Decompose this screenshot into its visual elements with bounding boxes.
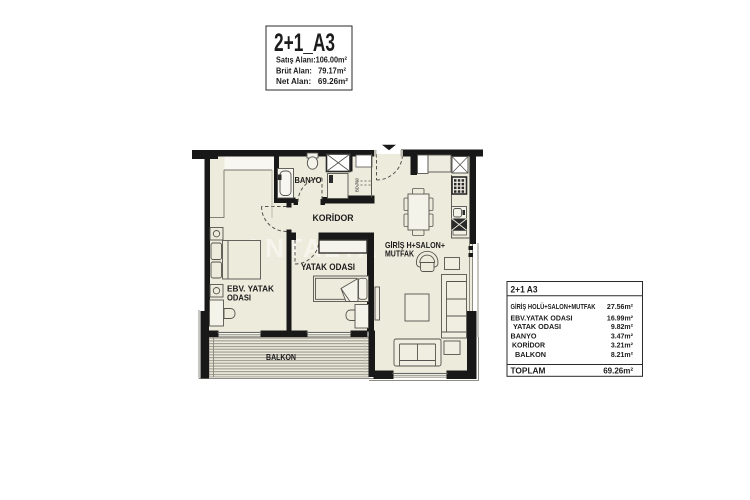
svg-text:YATAK ODASI: YATAK ODASI xyxy=(301,262,355,272)
svg-text:3.47m²: 3.47m² xyxy=(611,333,634,340)
svg-text:2+1 A3: 2+1 A3 xyxy=(511,285,538,295)
svg-text:16.99m²: 16.99m² xyxy=(607,315,634,322)
svg-text:YATAK ODASI: YATAK ODASI xyxy=(513,324,561,331)
svg-text:3.21m²: 3.21m² xyxy=(611,342,634,349)
svg-text:8.21m²: 8.21m² xyxy=(611,352,634,359)
svg-text:EBV.YATAK ODASI: EBV.YATAK ODASI xyxy=(511,315,573,322)
svg-text:Net Alan: 69.26m²: Net Alan: 69.26m² xyxy=(276,77,348,86)
svg-text:MUTFAK: MUTFAK xyxy=(385,249,415,259)
svg-text:BANYO: BANYO xyxy=(511,333,538,340)
svg-text:9.82m²: 9.82m² xyxy=(611,324,634,331)
svg-text:BALKON: BALKON xyxy=(266,352,296,362)
svg-text:69.26m²: 69.26m² xyxy=(603,366,633,375)
svg-text:Brüt Alan: 79.17m²: Brüt Alan: 79.17m² xyxy=(276,66,346,75)
svg-text:ODASI: ODASI xyxy=(227,293,251,303)
svg-text:2+1_A3: 2+1_A3 xyxy=(274,29,335,57)
svg-text:BALKON: BALKON xyxy=(515,352,546,359)
svg-text:Satış Alanı:106.00m²: Satış Alanı:106.00m² xyxy=(276,56,347,65)
svg-text:BANYO: BANYO xyxy=(295,175,322,185)
svg-text:KORİDOR: KORİDOR xyxy=(313,213,354,223)
svg-text:KORİDOR: KORİDOR xyxy=(512,341,545,349)
svg-text:BD.760: BD.760 xyxy=(355,177,360,192)
svg-text:GİRİŞ HOLÜ+SALON+MUTFAK: GİRİŞ HOLÜ+SALON+MUTFAK xyxy=(511,302,596,311)
svg-text:27.56m²: 27.56m² xyxy=(607,304,634,311)
svg-text:TOPLAM: TOPLAM xyxy=(511,366,546,375)
